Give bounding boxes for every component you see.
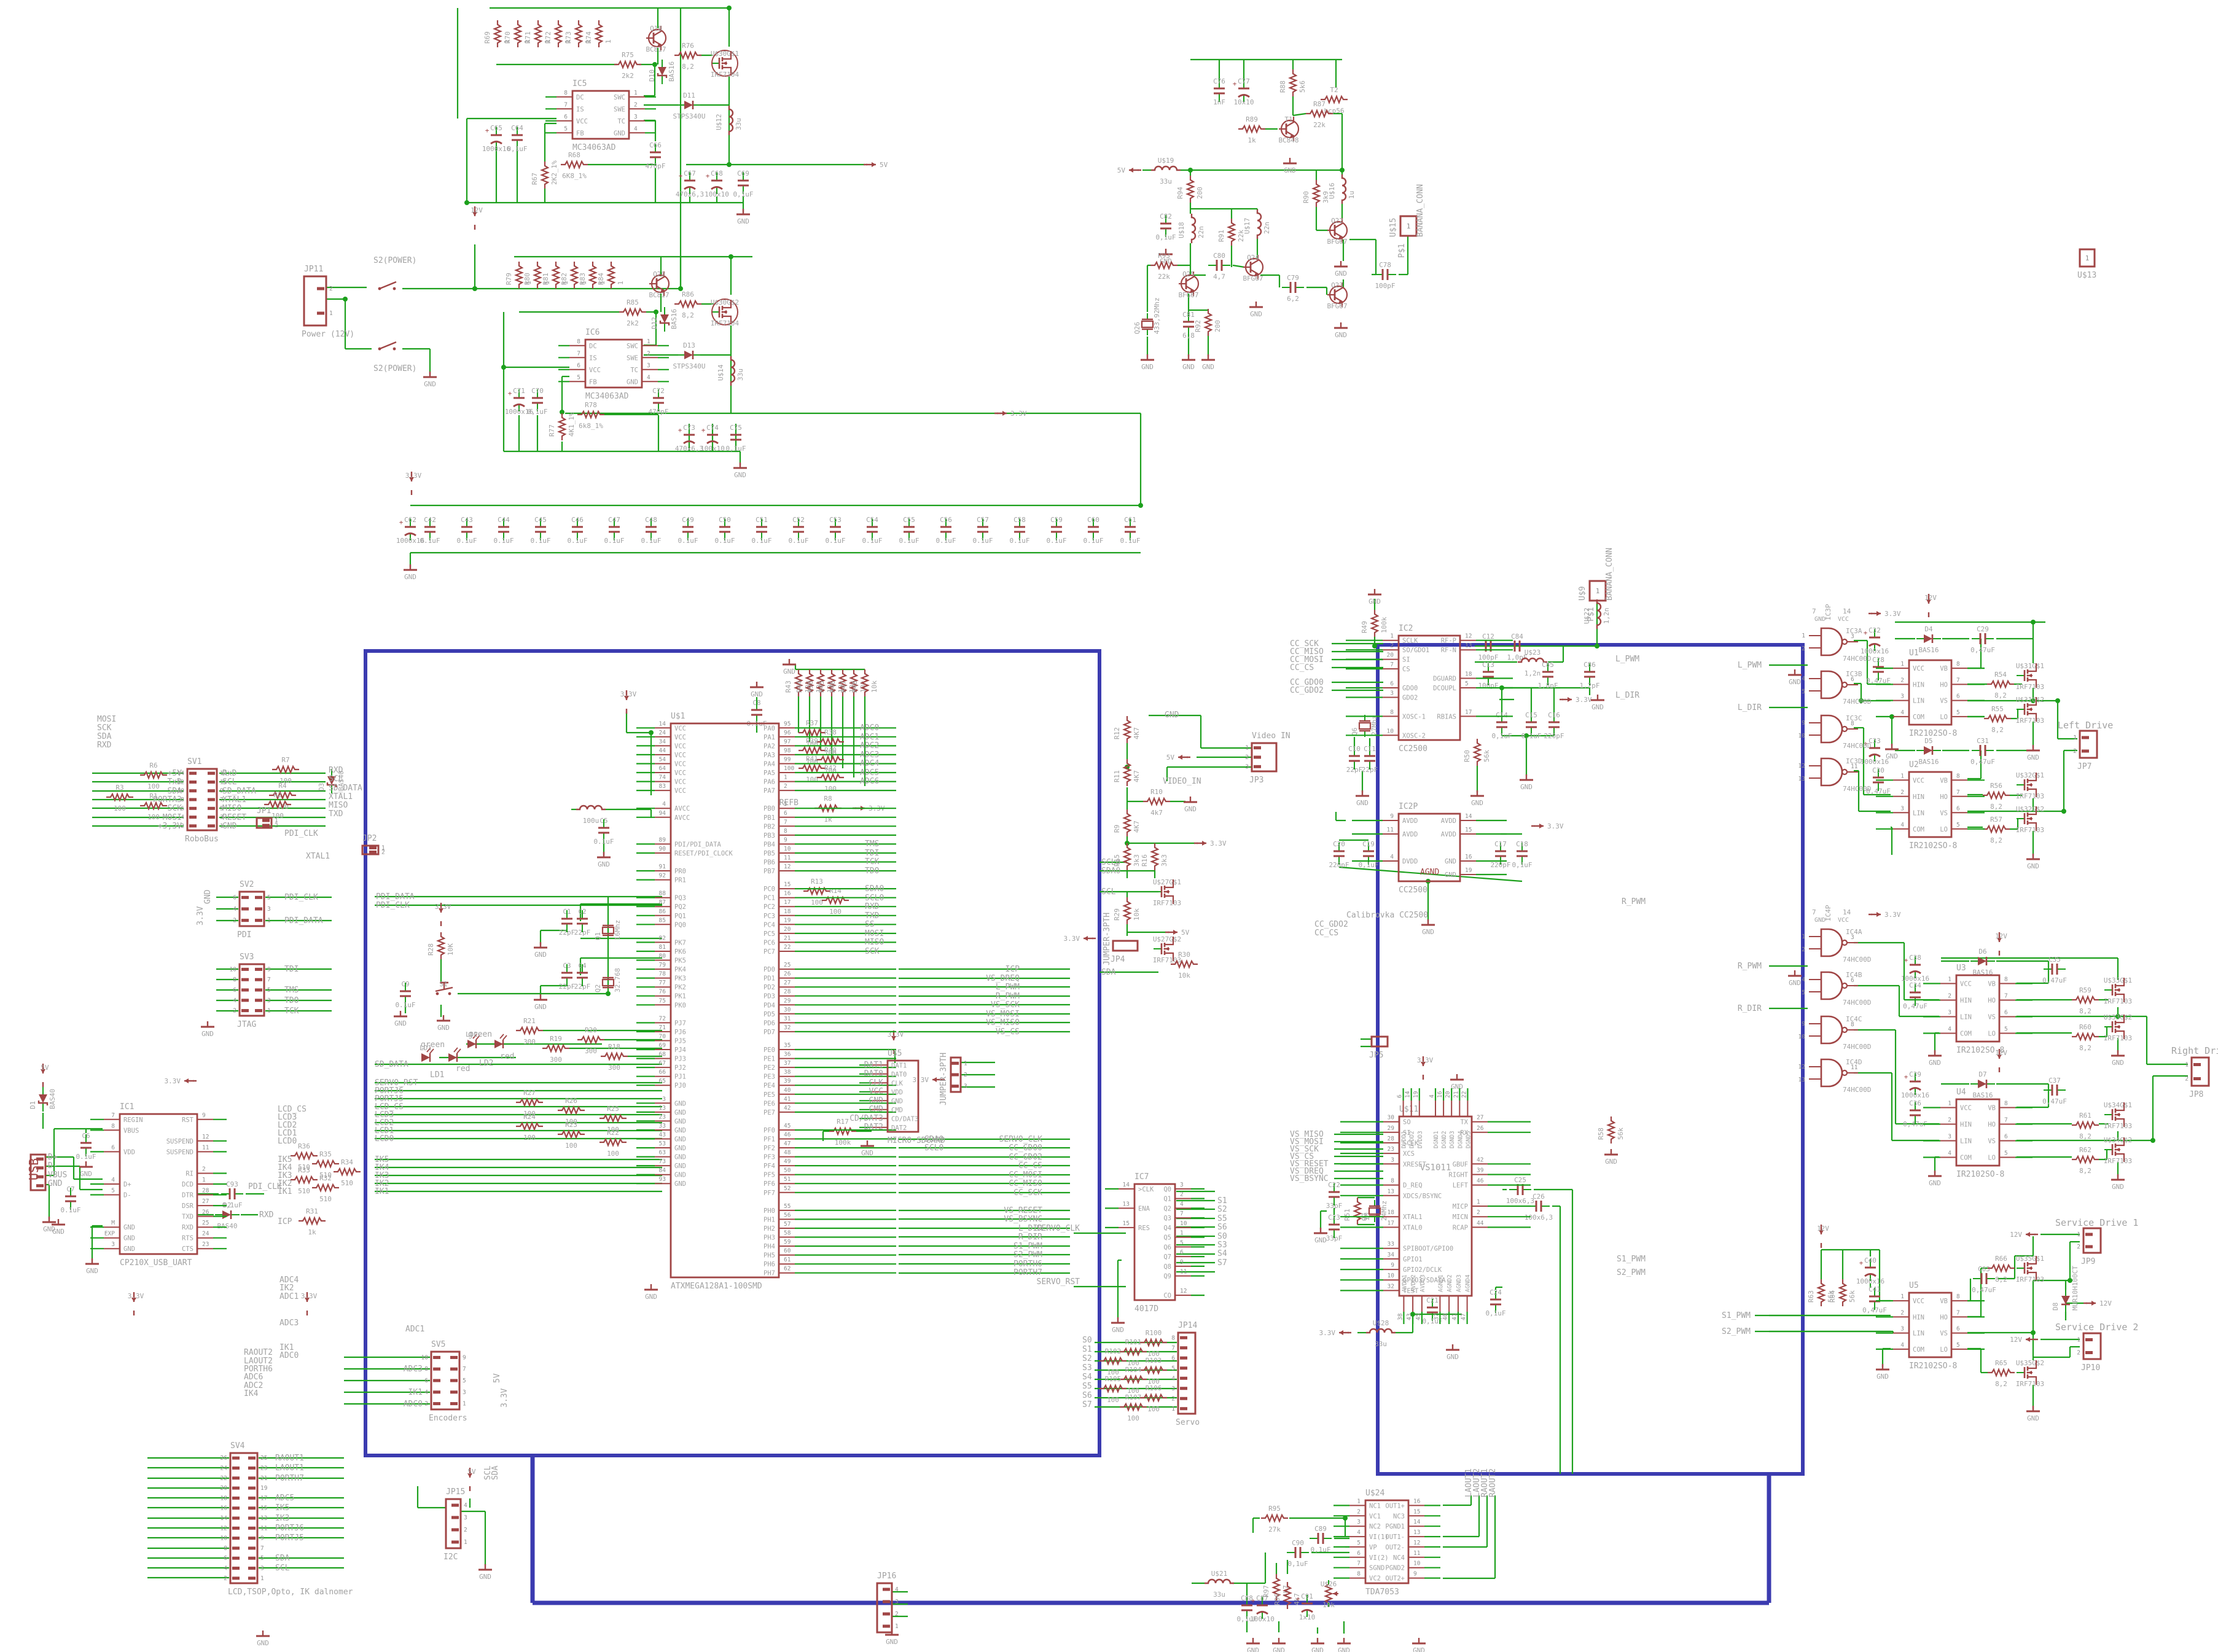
svg-text:GND: GND xyxy=(86,1267,98,1275)
svg-text:C21: C21 xyxy=(1426,1296,1439,1304)
svg-text:SDA: SDA xyxy=(275,1554,290,1563)
svg-text:Q3: Q3 xyxy=(1163,1215,1171,1222)
svg-text:13: 13 xyxy=(1465,642,1472,649)
svg-text:22: 22 xyxy=(221,1475,227,1482)
svg-text:26: 26 xyxy=(784,971,791,978)
svg-text:MICN: MICN xyxy=(1453,1214,1468,1221)
svg-text:JP14: JP14 xyxy=(1178,1321,1197,1330)
svg-text:1: 1 xyxy=(895,1623,899,1630)
svg-text:12: 12 xyxy=(1465,633,1472,640)
svg-text:SO: SO xyxy=(1403,1119,1411,1126)
svg-text:PE0: PE0 xyxy=(763,1046,775,1054)
svg-text:Video IN: Video IN xyxy=(1252,731,1291,741)
gnd-symbol: GND xyxy=(2111,1050,2125,1067)
svg-text:RCAP: RCAP xyxy=(1453,1224,1468,1231)
svg-text:26: 26 xyxy=(1477,1125,1484,1132)
svg-text:PORTA3: PORTA3 xyxy=(153,795,182,805)
gnd-symbol: GND xyxy=(534,994,547,1011)
svg-text:GND: GND xyxy=(2112,1183,2124,1191)
svg-text:74HC00D: 74HC00D xyxy=(1843,742,1871,750)
svg-text:28: 28 xyxy=(1388,1136,1395,1142)
svg-text:4017D: 4017D xyxy=(1134,1304,1158,1314)
part-U$30G$2: U$30G$2IRF7104 xyxy=(711,298,740,327)
part-C78: C78100pF xyxy=(1374,261,1396,290)
svg-text:+: + xyxy=(706,172,710,180)
svg-text:HO: HO xyxy=(1940,681,1948,688)
svg-text:4: 4 xyxy=(1802,976,1805,983)
module-frames xyxy=(365,645,1803,1603)
gnd-symbol: GND xyxy=(1356,790,1369,807)
part-R54: R548,2 xyxy=(1987,671,2014,699)
svg-text:L_PWM: L_PWM xyxy=(996,983,1020,992)
svg-text:EXP: EXP xyxy=(104,1231,115,1237)
svg-text:IRF7103: IRF7103 xyxy=(2016,683,2044,691)
svg-text:PC6: PC6 xyxy=(763,939,775,946)
svg-text:GND: GND xyxy=(80,1170,92,1178)
svg-text:R48: R48 xyxy=(851,680,859,693)
svg-text:8,2: 8,2 xyxy=(1994,692,2007,699)
svg-text:8: 8 xyxy=(577,338,580,345)
gate-IC4A: 123IC4A xyxy=(1802,928,1862,956)
part-C37: C370,47uF xyxy=(2042,1077,2067,1105)
svg-text:10: 10 xyxy=(230,966,237,973)
svg-text:Q6: Q6 xyxy=(1163,1244,1171,1251)
svg-text:Q22: Q22 xyxy=(1331,217,1343,225)
part-C12: C12100pF xyxy=(1477,633,1499,661)
part-R61: R618,2 xyxy=(2072,1112,2099,1140)
part-C42: C420.1uF xyxy=(420,516,440,545)
svg-text:C34: C34 xyxy=(1909,981,1921,989)
gnd-symbol: GND xyxy=(644,1284,658,1301)
svg-text:HO: HO xyxy=(1940,1314,1948,1321)
svg-text:R70: R70 xyxy=(504,31,512,44)
svg-text:C10: C10 xyxy=(1348,745,1361,753)
svg-text:57: 57 xyxy=(784,1221,791,1228)
svg-text:VS: VS xyxy=(1988,1138,1996,1145)
svg-text:100: 100 xyxy=(147,813,160,821)
svg-text:TXD: TXD xyxy=(182,1214,193,1221)
svg-text:Q26: Q26 xyxy=(1133,322,1141,334)
svg-text:6: 6 xyxy=(233,894,236,901)
svg-text:T1: T1 xyxy=(1284,115,1292,123)
svg-text:C22: C22 xyxy=(1328,1181,1340,1189)
svg-text:6: 6 xyxy=(1180,1249,1184,1256)
svg-text:12: 12 xyxy=(202,1134,209,1140)
svg-text:R59: R59 xyxy=(2079,986,2091,994)
svg-text:0.1uF: 0.1uF xyxy=(1046,537,1066,545)
svg-text:18: 18 xyxy=(784,908,791,915)
svg-text:C53: C53 xyxy=(829,516,842,524)
svg-text:12V: 12V xyxy=(471,206,483,214)
svg-text:100: 100 xyxy=(829,908,842,916)
svg-text:PE5: PE5 xyxy=(763,1091,775,1099)
part-C47: C470.1uF xyxy=(604,516,624,545)
svg-text:JP2: JP2 xyxy=(362,834,377,843)
svg-text:R39: R39 xyxy=(806,737,818,745)
svg-text:R_PWM: R_PWM xyxy=(1738,962,1762,971)
svg-text:PORTH7: PORTH7 xyxy=(275,1474,304,1483)
svg-text:14: 14 xyxy=(1123,1182,1130,1188)
svg-text:0,1uF: 0,1uF xyxy=(1358,861,1378,869)
connector-conn: 1 xyxy=(1590,581,1606,601)
svg-text:1k: 1k xyxy=(308,1228,316,1236)
svg-text:CC_SCK: CC_SCK xyxy=(1013,1188,1042,1198)
svg-text:0.1uF: 0.1uF xyxy=(972,537,993,545)
svg-text:C14: C14 xyxy=(1496,711,1508,719)
svg-text:5: 5 xyxy=(1465,680,1469,687)
svg-text:1: 1 xyxy=(1900,1293,1904,1300)
svg-text:U$26: U$26 xyxy=(1321,1580,1337,1588)
svg-text:470pF: 470pF xyxy=(648,408,668,416)
svg-text:+: + xyxy=(1859,1259,1864,1267)
svg-text:15: 15 xyxy=(784,881,791,888)
svg-text:R22: R22 xyxy=(607,1129,619,1137)
nand-gates: 123IC3A456IC3B9108IC3C121311IC3D123IC4A4… xyxy=(1798,627,1862,1086)
part-R74: R741 xyxy=(585,20,612,47)
svg-text:470x6,3: 470x6,3 xyxy=(676,190,704,198)
svg-text:L_PWM: L_PWM xyxy=(1738,661,1762,670)
part-D10: D10BAS16 xyxy=(648,60,676,84)
svg-text:PORTH6: PORTH6 xyxy=(1013,1260,1042,1269)
svg-text:3: 3 xyxy=(1948,1134,1951,1140)
svg-text:VB: VB xyxy=(1940,665,1948,672)
svg-text:VCC: VCC xyxy=(576,118,588,125)
svg-text:4K7: 4K7 xyxy=(1133,820,1141,833)
svg-text:LO: LO xyxy=(1988,1155,1996,1162)
svg-text:GND: GND xyxy=(891,1097,903,1105)
part-C48: C480.1uF xyxy=(641,516,661,545)
svg-text:33u: 33u xyxy=(1160,177,1172,185)
svg-text:R24: R24 xyxy=(523,1113,536,1121)
svg-text:0,47uF: 0,47uF xyxy=(2042,976,2067,984)
svg-text:5: 5 xyxy=(1180,1239,1184,1246)
svg-text:7: 7 xyxy=(1180,1210,1184,1217)
part-U$35G$2: U$35G$2IRF7103 xyxy=(2016,1359,2044,1388)
svg-text:PB7: PB7 xyxy=(763,868,775,875)
part-C41: C410,47uF xyxy=(1862,1285,1887,1314)
svg-text:45: 45 xyxy=(784,1123,791,1129)
supply-arrow: 5V xyxy=(467,1468,476,1491)
svg-text:CMD: CMD xyxy=(891,1107,903,1114)
svg-text:14: 14 xyxy=(1843,607,1851,615)
svg-text:9: 9 xyxy=(1413,1571,1417,1578)
svg-text:47: 47 xyxy=(1461,1314,1467,1320)
svg-text:R94: R94 xyxy=(1176,187,1184,199)
svg-text:10: 10 xyxy=(421,1354,429,1361)
svg-text:P$1: P$1 xyxy=(1397,244,1407,258)
svg-text:R28: R28 xyxy=(427,943,435,956)
svg-text:C65: C65 xyxy=(490,124,502,132)
svg-text:Q8: Q8 xyxy=(1163,1263,1171,1271)
svg-text:CLK: CLK xyxy=(869,1078,884,1088)
svg-text:GND: GND xyxy=(203,889,213,904)
svg-text:DGUARD: DGUARD xyxy=(1433,676,1456,683)
gnd-symbol: GND xyxy=(2026,745,2040,762)
svg-text:100: 100 xyxy=(147,782,160,790)
svg-text:TC: TC xyxy=(630,367,638,374)
part-C13: C13100pF xyxy=(1478,661,1498,690)
svg-text:C86: C86 xyxy=(1583,661,1596,669)
gnd-symbol: GND xyxy=(534,942,547,959)
svg-text:8: 8 xyxy=(1390,709,1394,715)
connector-JP10: JP1012 xyxy=(2077,1333,2101,1373)
svg-text:SCLK: SCLK xyxy=(1402,637,1418,645)
svg-text:M: M xyxy=(111,1220,115,1226)
svg-text:BAS16: BAS16 xyxy=(670,309,678,329)
svg-text:4: 4 xyxy=(662,801,666,808)
svg-text:PK1: PK1 xyxy=(674,993,686,1000)
svg-text:3: 3 xyxy=(111,1241,115,1248)
svg-text:S0: S0 xyxy=(1082,1336,1092,1345)
svg-text:12V: 12V xyxy=(2010,1231,2022,1239)
svg-text:C68: C68 xyxy=(711,169,723,177)
svg-text:Q2: Q2 xyxy=(594,984,602,992)
svg-text:IK3: IK3 xyxy=(275,1514,289,1523)
svg-text:PB4: PB4 xyxy=(763,841,775,848)
svg-text:16: 16 xyxy=(784,890,791,897)
svg-text:2: 2 xyxy=(2185,1076,2189,1083)
svg-text:C90: C90 xyxy=(1292,1539,1304,1547)
gnd-symbol: GND xyxy=(1184,797,1197,813)
svg-text:33: 33 xyxy=(659,1123,666,1129)
svg-text:0,47uF: 0,47uF xyxy=(1970,646,1995,654)
svg-text:PC1: PC1 xyxy=(763,895,775,902)
supply-arrow: 3.3V xyxy=(994,410,1027,418)
svg-text:0.1uF: 0.1uF xyxy=(420,537,440,545)
svg-text:8: 8 xyxy=(2004,1101,2008,1107)
svg-text:U2: U2 xyxy=(1909,760,1919,770)
svg-text:3: 3 xyxy=(895,1599,899,1605)
svg-text:PDI_CLK: PDI_CLK xyxy=(284,893,318,902)
svg-text:MOSI: MOSI xyxy=(865,929,884,938)
part-R12: R124K7 xyxy=(1113,716,1141,743)
svg-text:DAT2: DAT2 xyxy=(864,1123,883,1132)
svg-text:U$34G$1: U$34G$1 xyxy=(2104,1101,2132,1109)
svg-text:8: 8 xyxy=(111,1123,115,1129)
svg-text:U$31G$1: U$31G$1 xyxy=(2016,662,2044,670)
svg-text:11: 11 xyxy=(260,1525,268,1532)
svg-text:PK3: PK3 xyxy=(674,975,686,983)
svg-text:16: 16 xyxy=(1413,1498,1421,1505)
svg-text:12: 12 xyxy=(1798,763,1805,770)
svg-text:33u: 33u xyxy=(735,118,743,130)
svg-text:7: 7 xyxy=(2004,1117,2008,1124)
svg-text:4: 4 xyxy=(1429,1094,1435,1098)
svg-text:CTS: CTS xyxy=(182,1245,193,1253)
svg-text:10K: 10K xyxy=(447,943,455,956)
svg-text:7: 7 xyxy=(1390,661,1394,668)
svg-text:Q18: Q18 xyxy=(650,25,662,33)
svg-text:R42: R42 xyxy=(824,764,837,772)
svg-text:SCK: SCK xyxy=(97,723,112,733)
svg-text:RXD: RXD xyxy=(329,766,343,775)
svg-text:R26: R26 xyxy=(565,1097,577,1105)
svg-text:0,1uF: 0,1uF xyxy=(1491,732,1512,740)
svg-text:DVDD: DVDD xyxy=(1402,858,1418,865)
gnd-symbol: GND xyxy=(1311,1638,1324,1652)
svg-text:JP8: JP8 xyxy=(2189,1090,2203,1099)
svg-text:0,47uF: 0,47uF xyxy=(1866,677,1891,685)
svg-text:PD4: PD4 xyxy=(763,1002,775,1009)
part-U$31G$2: U$31G$2IRF7103 xyxy=(2016,696,2044,725)
supply-arrow: 12V xyxy=(1995,932,2007,956)
ic-U4: U4IR2102SO-81VCC2HIN3LIN4COM8VB7HO6VS5LO xyxy=(1923,1088,2033,1179)
svg-text:PC2: PC2 xyxy=(763,903,775,911)
svg-text:R90: R90 xyxy=(1302,191,1310,203)
svg-text:0.1uF: 0.1uF xyxy=(395,1001,415,1009)
svg-text:0.1uF: 0.1uF xyxy=(456,537,477,545)
svg-text:BFG67: BFG67 xyxy=(1178,291,1198,299)
svg-text:R104: R104 xyxy=(1125,1366,1142,1374)
svg-text:XDCS/BSYNC: XDCS/BSYNC xyxy=(1403,1193,1442,1200)
supply-arrow: 3.3V xyxy=(1194,840,1227,847)
svg-text:2: 2 xyxy=(784,783,787,790)
part-R89: R891k xyxy=(1238,115,1265,144)
svg-text:3: 3 xyxy=(1357,1519,1361,1525)
svg-text:CC2500: CC2500 xyxy=(1399,744,1427,754)
svg-text:3.3V: 3.3V xyxy=(435,903,451,911)
svg-text:PA7: PA7 xyxy=(763,787,775,795)
svg-text:C67: C67 xyxy=(684,169,696,177)
svg-text:C7: C7 xyxy=(66,1185,74,1193)
svg-text:3.3V: 3.3V xyxy=(913,1076,929,1084)
svg-text:94: 94 xyxy=(659,810,666,817)
svg-text:U$18: U$18 xyxy=(1177,222,1185,239)
svg-text:73: 73 xyxy=(659,1158,666,1165)
svg-text:S3: S3 xyxy=(1217,1241,1227,1250)
svg-text:BAS16: BAS16 xyxy=(1972,1091,1993,1099)
svg-text:P$1: P$1 xyxy=(1587,607,1596,621)
svg-text:DGND2: DGND2 xyxy=(1441,1131,1448,1148)
svg-text:S4: S4 xyxy=(1082,1373,1092,1382)
svg-text:GND: GND xyxy=(1789,678,1801,686)
svg-text:GND: GND xyxy=(222,822,237,831)
svg-text:GND: GND xyxy=(1929,1059,1941,1067)
svg-text:4,7: 4,7 xyxy=(1213,273,1225,281)
svg-text:U$5: U$5 xyxy=(888,1049,902,1058)
svg-text:PC5: PC5 xyxy=(763,930,775,938)
svg-text:2: 2 xyxy=(647,350,650,357)
svg-text:18: 18 xyxy=(1388,1209,1395,1216)
svg-text:IK4: IK4 xyxy=(244,1389,259,1398)
svg-text:0,47uF: 0,47uF xyxy=(1970,758,1995,766)
svg-text:26: 26 xyxy=(202,1209,209,1216)
svg-text:PA3: PA3 xyxy=(763,752,775,759)
part-R68: R686K8_1% xyxy=(561,151,588,180)
svg-text:SDA: SDA xyxy=(168,787,182,796)
svg-text:1: 1 xyxy=(647,338,650,345)
svg-text:Right Drive: Right Drive xyxy=(2171,1045,2218,1056)
svg-text:GND: GND xyxy=(479,1573,491,1581)
svg-text:100: 100 xyxy=(824,785,837,793)
svg-text:100: 100 xyxy=(607,1150,619,1158)
svg-text:PB2: PB2 xyxy=(763,823,775,830)
svg-text:AVDD: AVDD xyxy=(1402,817,1418,825)
svg-text:U$17: U$17 xyxy=(1243,218,1251,235)
svg-text:PD6: PD6 xyxy=(763,1019,775,1027)
svg-text:COM: COM xyxy=(1913,714,1924,721)
svg-text:42: 42 xyxy=(784,1105,791,1112)
svg-text:3.3V: 3.3V xyxy=(1319,1329,1336,1337)
svg-text:AVCC: AVCC xyxy=(674,805,690,812)
svg-text:NC2: NC2 xyxy=(1369,1523,1381,1530)
svg-text:1: 1 xyxy=(617,281,625,285)
svg-text:C55: C55 xyxy=(903,516,915,524)
svg-text:XCS: XCS xyxy=(1403,1150,1415,1158)
svg-text:C41: C41 xyxy=(1869,1285,1881,1293)
svg-text:AGND3: AGND3 xyxy=(1456,1274,1462,1292)
svg-text:R9: R9 xyxy=(1113,825,1121,833)
svg-text:C82: C82 xyxy=(1160,212,1172,220)
svg-text:SWE: SWE xyxy=(627,354,638,362)
svg-text:RESET: RESET xyxy=(222,813,246,822)
part-R77: R774K1_1% xyxy=(548,412,576,440)
svg-text:GND: GND xyxy=(734,471,746,479)
svg-text:R23: R23 xyxy=(565,1121,577,1129)
discrete-parts: R691R701R711R721R731R741R752k2Q18BC817D1… xyxy=(29,20,2132,1623)
svg-text:PH7: PH7 xyxy=(763,1270,775,1277)
svg-text:FB: FB xyxy=(589,378,597,386)
supply-arrow: 3.3V xyxy=(620,690,637,714)
svg-text:13: 13 xyxy=(1123,1201,1130,1207)
svg-text:6: 6 xyxy=(1171,1355,1175,1362)
svg-text:1: 1 xyxy=(1180,1230,1184,1237)
svg-text:0.1uF: 0.1uF xyxy=(641,537,661,545)
svg-text:SCL: SCL xyxy=(275,1564,290,1573)
svg-text:R84: R84 xyxy=(597,273,605,285)
svg-text:MISO: MISO xyxy=(329,801,348,810)
svg-text:JP15: JP15 xyxy=(446,1487,465,1497)
svg-text:VS: VS xyxy=(1940,698,1948,705)
part-C58: C580.1uF xyxy=(1009,516,1029,545)
svg-text:C44: C44 xyxy=(498,516,510,524)
svg-text:7: 7 xyxy=(1812,607,1816,615)
part-R21: R21300 xyxy=(516,1017,543,1046)
svg-text:6: 6 xyxy=(564,114,568,120)
svg-text:IR2102SO-8: IR2102SO-8 xyxy=(1956,1046,2004,1055)
svg-text:R32: R32 xyxy=(319,1174,332,1182)
connector-SV3: SV3JTAG10864297531 xyxy=(230,953,271,1029)
svg-text:PJ2: PJ2 xyxy=(674,1064,686,1072)
part-R86: R868,2 xyxy=(674,290,701,319)
connector-JP15: JP15I2C4321 xyxy=(443,1487,467,1562)
svg-text:ADC5: ADC5 xyxy=(860,768,879,777)
part-R90: R903k9 xyxy=(1302,180,1330,207)
part-R76: R768,2 xyxy=(674,42,701,71)
svg-text:12V: 12V xyxy=(1995,932,2007,940)
svg-text:C71: C71 xyxy=(513,387,525,395)
svg-text:C12: C12 xyxy=(1482,633,1494,641)
part-R91: R9122k xyxy=(1217,219,1245,246)
svg-text:2k2: 2k2 xyxy=(627,319,639,327)
svg-text:Service Drive 2: Service Drive 2 xyxy=(2055,1322,2138,1333)
svg-text:C48: C48 xyxy=(645,516,657,524)
part-C68: +C68100x10 xyxy=(705,169,729,198)
svg-text:GND: GND xyxy=(861,1149,873,1157)
svg-text:PR1: PR1 xyxy=(674,877,686,884)
schematic-canvas: GNDGNDGNDGNDGNDGNDGNDGNDGNDGNDGNDGNDGNDG… xyxy=(0,0,2218,1652)
svg-text:R71: R71 xyxy=(524,31,532,44)
svg-text:R61: R61 xyxy=(2079,1112,2091,1120)
svg-text:C91: C91 xyxy=(1301,1592,1313,1600)
svg-text:13: 13 xyxy=(1413,1529,1420,1536)
svg-text:9: 9 xyxy=(202,1112,206,1119)
ic-IC7: IC74017D14>CLK13ENA15RES3Q02Q14Q27Q310Q4… xyxy=(1105,1172,1205,1314)
svg-text:44: 44 xyxy=(1477,1220,1484,1226)
svg-text:40: 40 xyxy=(784,1087,791,1094)
svg-text:GBUF: GBUF xyxy=(1453,1161,1468,1168)
svg-text:91: 91 xyxy=(659,863,666,870)
